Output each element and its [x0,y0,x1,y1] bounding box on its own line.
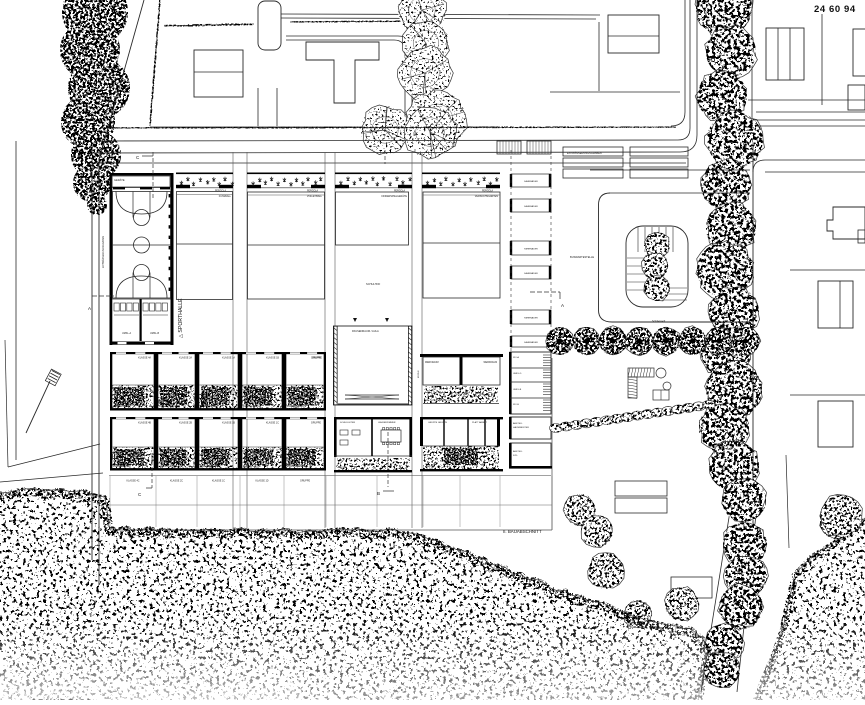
svg-text:ENTWÄSSERUNGSGRABEN: ENTWÄSSERUNGSGRABEN [567,151,602,155]
svg-text:SCHULHOF: SCHULHOF [366,282,381,286]
svg-text:KLASSE 1B: KLASSE 1B [222,422,235,425]
svg-text:KLASSE 2C: KLASSE 2C [170,480,183,483]
svg-text:SCHULLEITER: SCHULLEITER [340,422,355,424]
svg-text:LEHRERZIMMER: LEHRERZIMMER [378,422,396,424]
svg-text:II. BAUABSCHNITT: II. BAUABSCHNITT [503,529,542,534]
svg-text:B: B [377,491,380,496]
svg-text:GRUPPE: GRUPPE [311,422,322,425]
svg-text:UMKL-B: UMKL-B [513,389,522,391]
svg-text:KLASSE 1C: KLASSE 1C [212,480,225,483]
svg-text:A: A [88,306,91,311]
svg-text:KLASSE 2A: KLASSE 2A [179,357,192,360]
svg-text:A: A [561,303,564,308]
svg-text:VERSUCHSGARTEN: VERSUCHSGARTEN [475,195,498,198]
svg-text:GRUPPE GRUPPE: GRUPPE GRUPPE [428,422,448,424]
svg-text:Schülerwerft: Schülerwerft [652,320,666,323]
svg-text:UMKL-B: UMKL-B [150,332,159,335]
svg-text:VOLLEYBALL: VOLLEYBALL [307,195,323,198]
svg-text:KLASSE 1A: KLASSE 1A [222,357,235,360]
svg-text:24 60 94: 24 60 94 [814,4,856,15]
svg-text:KLASSE 4B: KLASSE 4B [138,422,151,425]
svg-text:GRUPPE: GRUPPE [312,357,323,360]
svg-text:△ SPORTHALLE: △ SPORTHALLE [178,298,184,338]
svg-text:ENTWÄSSERUNGSGRABEN: ENTWÄSSERUNGSGRABEN [102,236,105,268]
svg-text:GERÄTE: GERÄTE [114,178,125,182]
svg-text:KLASSE 2B: KLASSE 2B [179,422,192,425]
svg-text:PAUSENRAUM / AULA: PAUSENRAUM / AULA [352,329,379,333]
svg-text:GRUPPE: GRUPPE [300,480,311,483]
svg-text:KLASSE 1C: KLASSE 1C [266,422,279,425]
svg-text:KLASSE 1D: KLASSE 1D [255,480,268,483]
svg-text:KLASSE 1B: KLASSE 1B [266,357,279,360]
svg-text:WC-B: WC-B [513,404,519,406]
svg-text:UMKL-A: UMKL-A [122,332,131,335]
svg-text:BUSWARTESTELLE: BUSWARTESTELLE [570,255,594,259]
svg-text:FZG: FZG [513,455,518,457]
svg-text:FUSSBALL: FUSSBALL [219,195,232,198]
svg-text:KLASSE 4C: KLASSE 4C [126,480,139,483]
svg-text:KLASSE 4A: KLASSE 4A [138,357,151,360]
svg-text:KINDERSPIELGERÄTE: KINDERSPIELGERÄTE [381,195,407,198]
svg-text:UMKL-D: UMKL-D [513,373,522,375]
